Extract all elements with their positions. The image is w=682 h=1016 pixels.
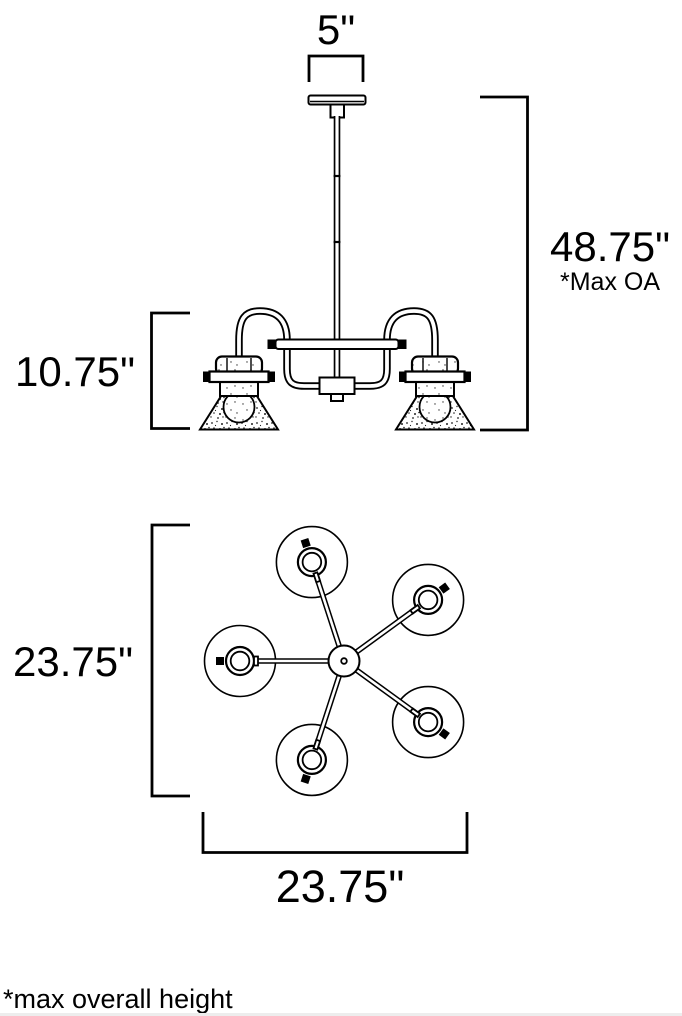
center-body — [320, 378, 355, 402]
spec-sheet-diagram: 5" 48.75" *Max OA 10.75" — [0, 0, 682, 1016]
chandelier-dimension-drawing: 5" 48.75" *Max OA 10.75" — [0, 0, 682, 1016]
footnote: *max overall height — [3, 984, 233, 1014]
top-view-hub — [329, 646, 360, 677]
canopy-width-bracket — [309, 56, 363, 82]
body-height-label: 10.75" — [15, 348, 135, 395]
top-view-height-bracket — [152, 525, 190, 796]
crossbar — [268, 340, 407, 350]
body-height-bracket — [152, 313, 191, 429]
canopy-width-label: 5" — [317, 6, 355, 53]
top-view-width-label: 23.75" — [276, 861, 405, 912]
canopy — [309, 96, 366, 118]
overall-height-label: 48.75" — [550, 223, 670, 270]
overall-height-bracket — [480, 97, 528, 430]
top-view-height-label: 23.75" — [13, 638, 133, 685]
left-shade — [200, 357, 278, 430]
top-view-width-bracket — [203, 812, 467, 853]
right-shade — [396, 357, 474, 430]
overall-height-note: *Max OA — [560, 268, 660, 296]
